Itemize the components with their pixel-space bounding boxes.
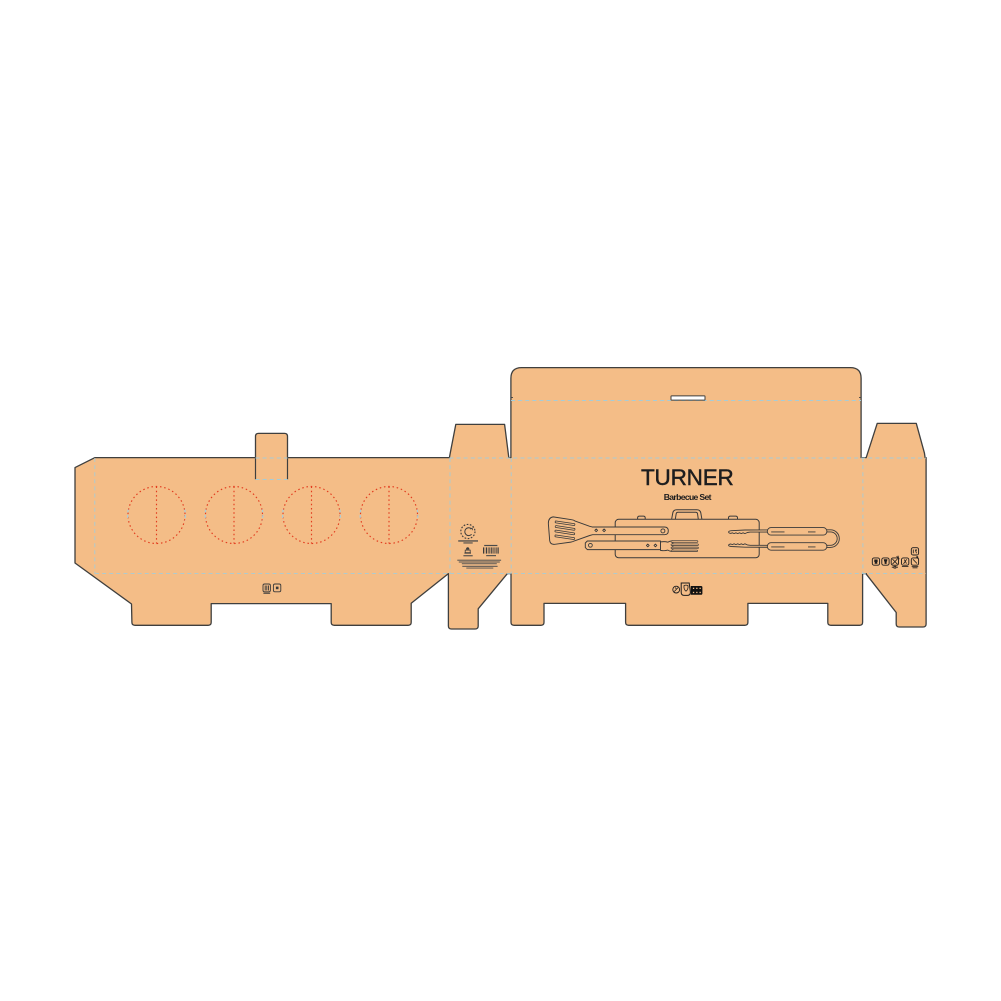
svg-text:TURNER: TURNER bbox=[641, 465, 734, 490]
svg-text:Barbecue Set: Barbecue Set bbox=[664, 492, 712, 502]
